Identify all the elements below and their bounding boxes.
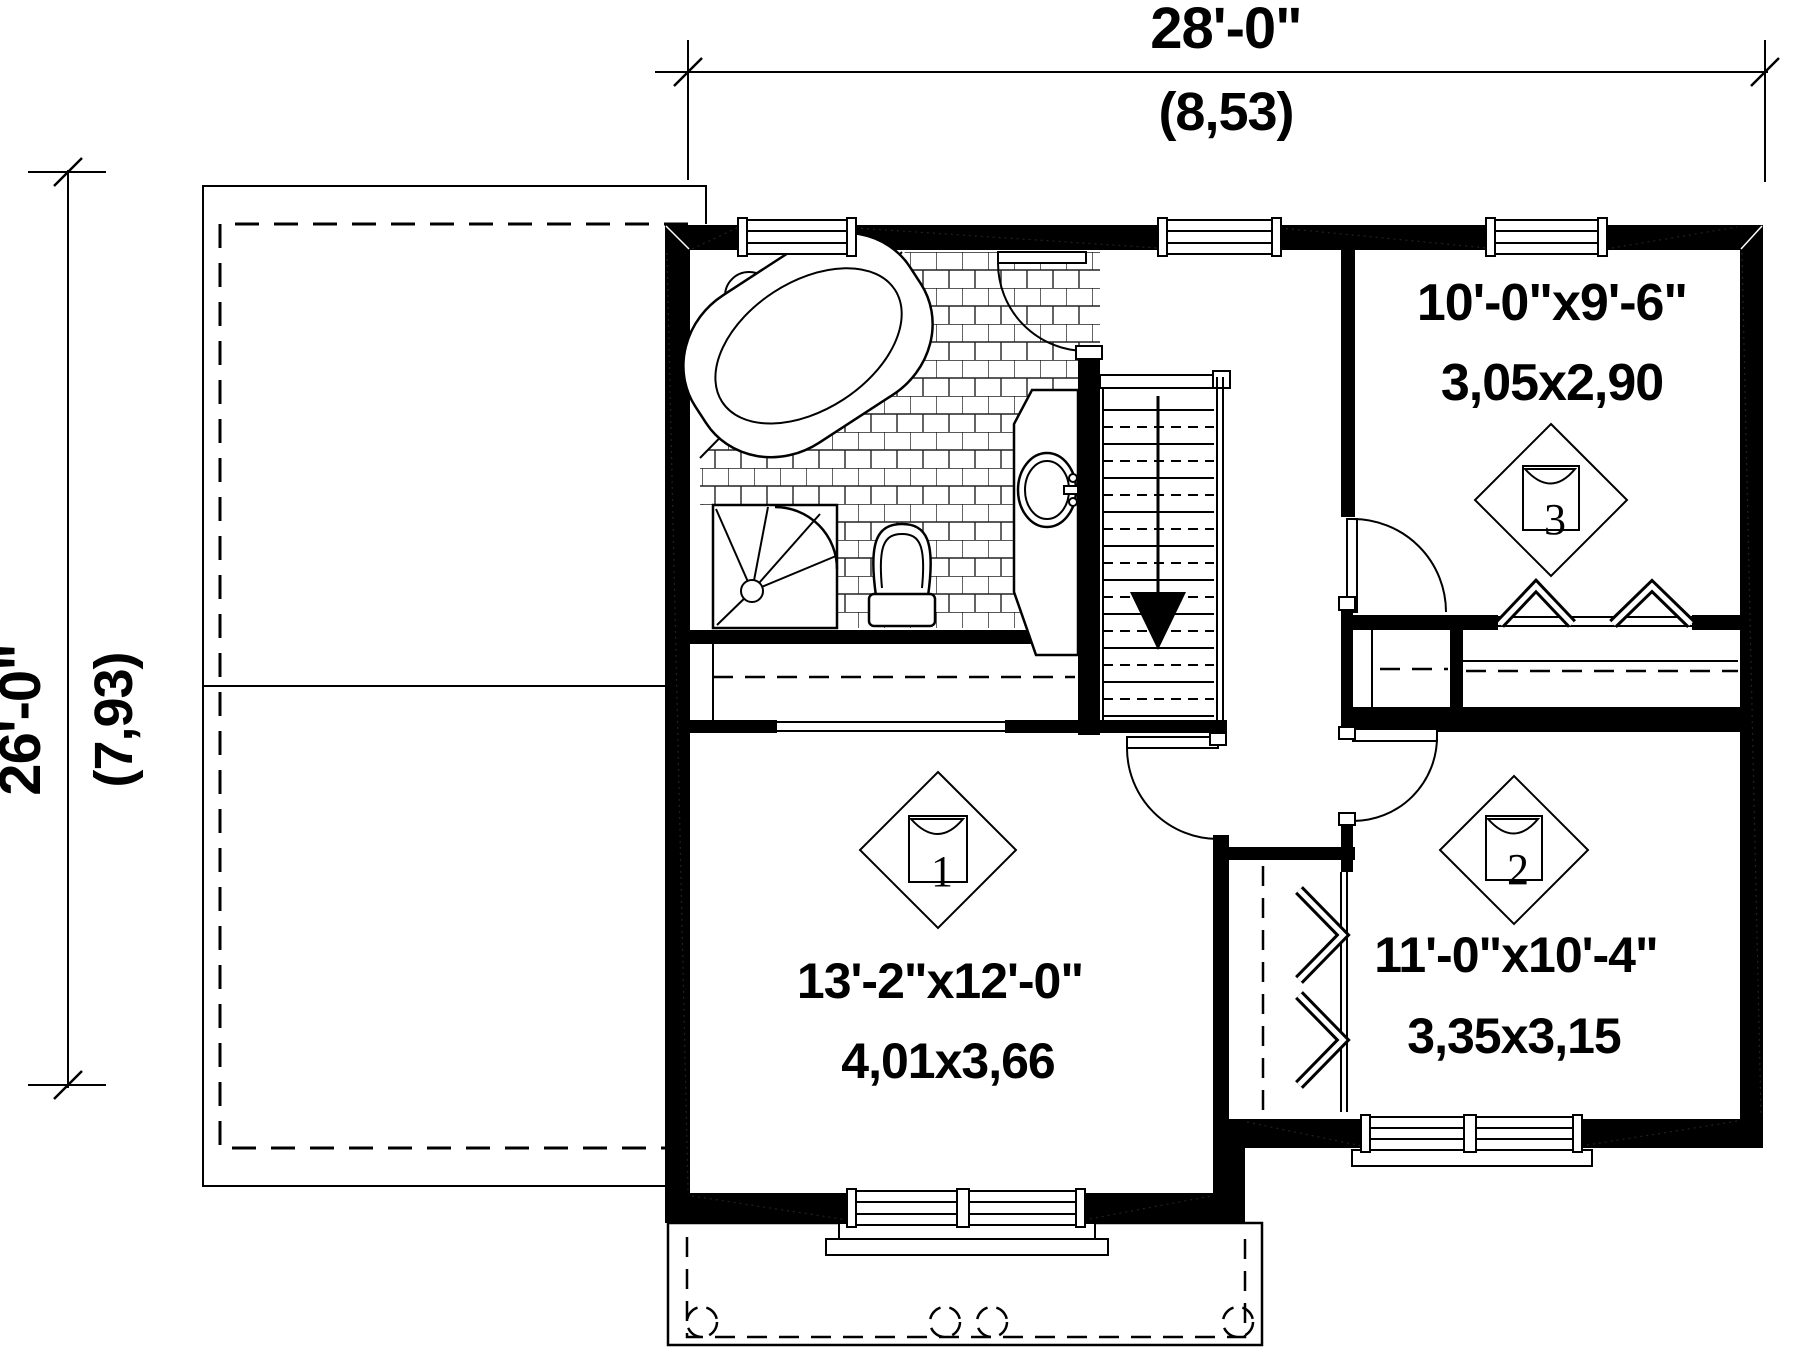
- dimension-left: 26'-0" (7,93): [0, 158, 144, 1099]
- wall-bedroom1-north-left: [690, 720, 777, 733]
- shower-drain: [741, 580, 763, 602]
- wall-bedroom1-east: [1213, 835, 1229, 1223]
- shower-stall: [713, 505, 837, 628]
- wall-bedroom1-north-right: [1005, 720, 1227, 733]
- sink-vanity: [1014, 390, 1078, 655]
- stair-direction-arrow-head: [1130, 592, 1186, 650]
- door-jamb: [1076, 346, 1102, 359]
- wall-bedroom2-west-stub: [1341, 825, 1353, 872]
- window-bedroom1: [839, 1189, 1095, 1239]
- bedroom3-door-swing: [1353, 519, 1446, 612]
- toilet: [869, 524, 935, 626]
- porch: [668, 1223, 1262, 1345]
- door-jamb: [1339, 813, 1355, 825]
- stair-newel: [1213, 371, 1230, 388]
- bedroom3-size-imperial: 10'-0"x9'-6": [1417, 274, 1687, 332]
- dimension-width-imperial: 28'-0": [1150, 0, 1301, 61]
- floor-plan-drawing: 28'-0" (8,53) 26'-0" (7,93): [0, 0, 1800, 1366]
- porch-stoop-step: [826, 1239, 1108, 1255]
- room-marker-1: 1: [860, 772, 1016, 928]
- wall-hall-south: [1225, 847, 1355, 860]
- sink-faucet: [1064, 486, 1078, 494]
- bedroom2-size-metric: 3,35x3,15: [1407, 1008, 1621, 1064]
- room-number: 3: [1544, 495, 1566, 544]
- door-jamb: [1339, 597, 1355, 610]
- bathroom-door-leaf: [998, 252, 1086, 263]
- window-bathroom: [738, 218, 856, 256]
- bathroom: [653, 201, 1100, 655]
- bedroom1-door-swing: [1127, 748, 1218, 839]
- wall-linen-east: [1450, 630, 1463, 707]
- window-bedroom3: [1486, 218, 1607, 256]
- bedroom1-size-imperial: 13'-2"x12'-0": [797, 953, 1083, 1009]
- room-number: 2: [1507, 845, 1529, 894]
- sink-handle: [1069, 498, 1077, 506]
- stair-landing-edge: [1100, 375, 1217, 388]
- bedroom1-door-leaf: [1127, 737, 1218, 748]
- room-number: 1: [931, 847, 953, 896]
- room-marker-3: 3: [1475, 424, 1627, 576]
- wall-bedroom3-south-right: [1692, 615, 1740, 630]
- bedroom2-door-swing: [1353, 737, 1437, 821]
- wall-bedroom3-south-left: [1341, 615, 1498, 630]
- bifold-doors-bedroom3: [1500, 586, 1691, 624]
- bedroom1-size-metric: 4,01x3,66: [841, 1033, 1054, 1089]
- bifold-doors-bedroom2: [1299, 890, 1343, 1085]
- floor-plan-page: 28'-0" (8,53) 26'-0" (7,93): [0, 0, 1800, 1366]
- staircase: [1100, 371, 1230, 732]
- dimension-depth-imperial: 26'-0": [0, 644, 53, 795]
- bedroom2-size-imperial: 11'-0"x10'-4": [1374, 927, 1657, 983]
- room-marker-2: 2: [1440, 776, 1588, 924]
- dimension-depth-metric: (7,93): [84, 652, 144, 787]
- dimension-top: 28'-0" (8,53): [655, 0, 1779, 182]
- garage-outline: [203, 186, 706, 1186]
- dimension-width-metric: (8,53): [1158, 82, 1293, 142]
- door-jamb: [1210, 733, 1226, 745]
- window-bedroom2: [1352, 1115, 1592, 1166]
- toilet-tank: [869, 594, 935, 626]
- window-landing: [1158, 218, 1281, 256]
- bedroom2-door-leaf: [1353, 729, 1437, 741]
- bedroom3-size-metric: 3,05x2,90: [1441, 354, 1663, 412]
- sink-handle: [1069, 474, 1077, 482]
- wall-bedroom3-west: [1341, 250, 1355, 517]
- wall-bathroom-east: [1078, 350, 1100, 735]
- door-jamb: [1339, 727, 1355, 739]
